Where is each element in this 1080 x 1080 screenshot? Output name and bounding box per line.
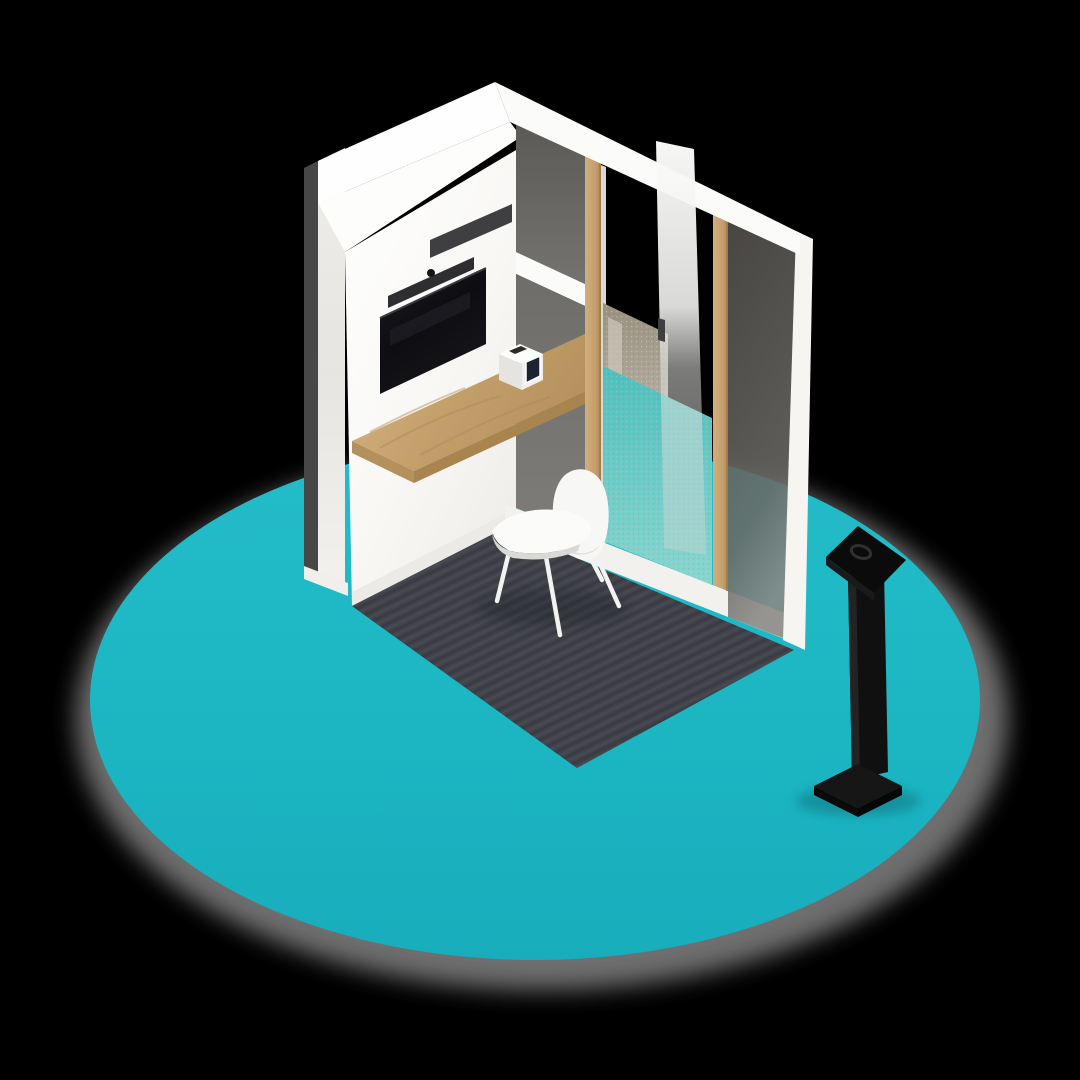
camera-dot-icon — [427, 269, 435, 277]
booth-render: Isometric 3D render of a compact office … — [0, 0, 1080, 1080]
left-wall-dark-edge — [304, 161, 318, 580]
render-stage: Isometric 3D render of a compact office … — [0, 0, 1080, 1080]
door-handle — [658, 318, 665, 342]
oak-pillar-right — [713, 211, 728, 591]
